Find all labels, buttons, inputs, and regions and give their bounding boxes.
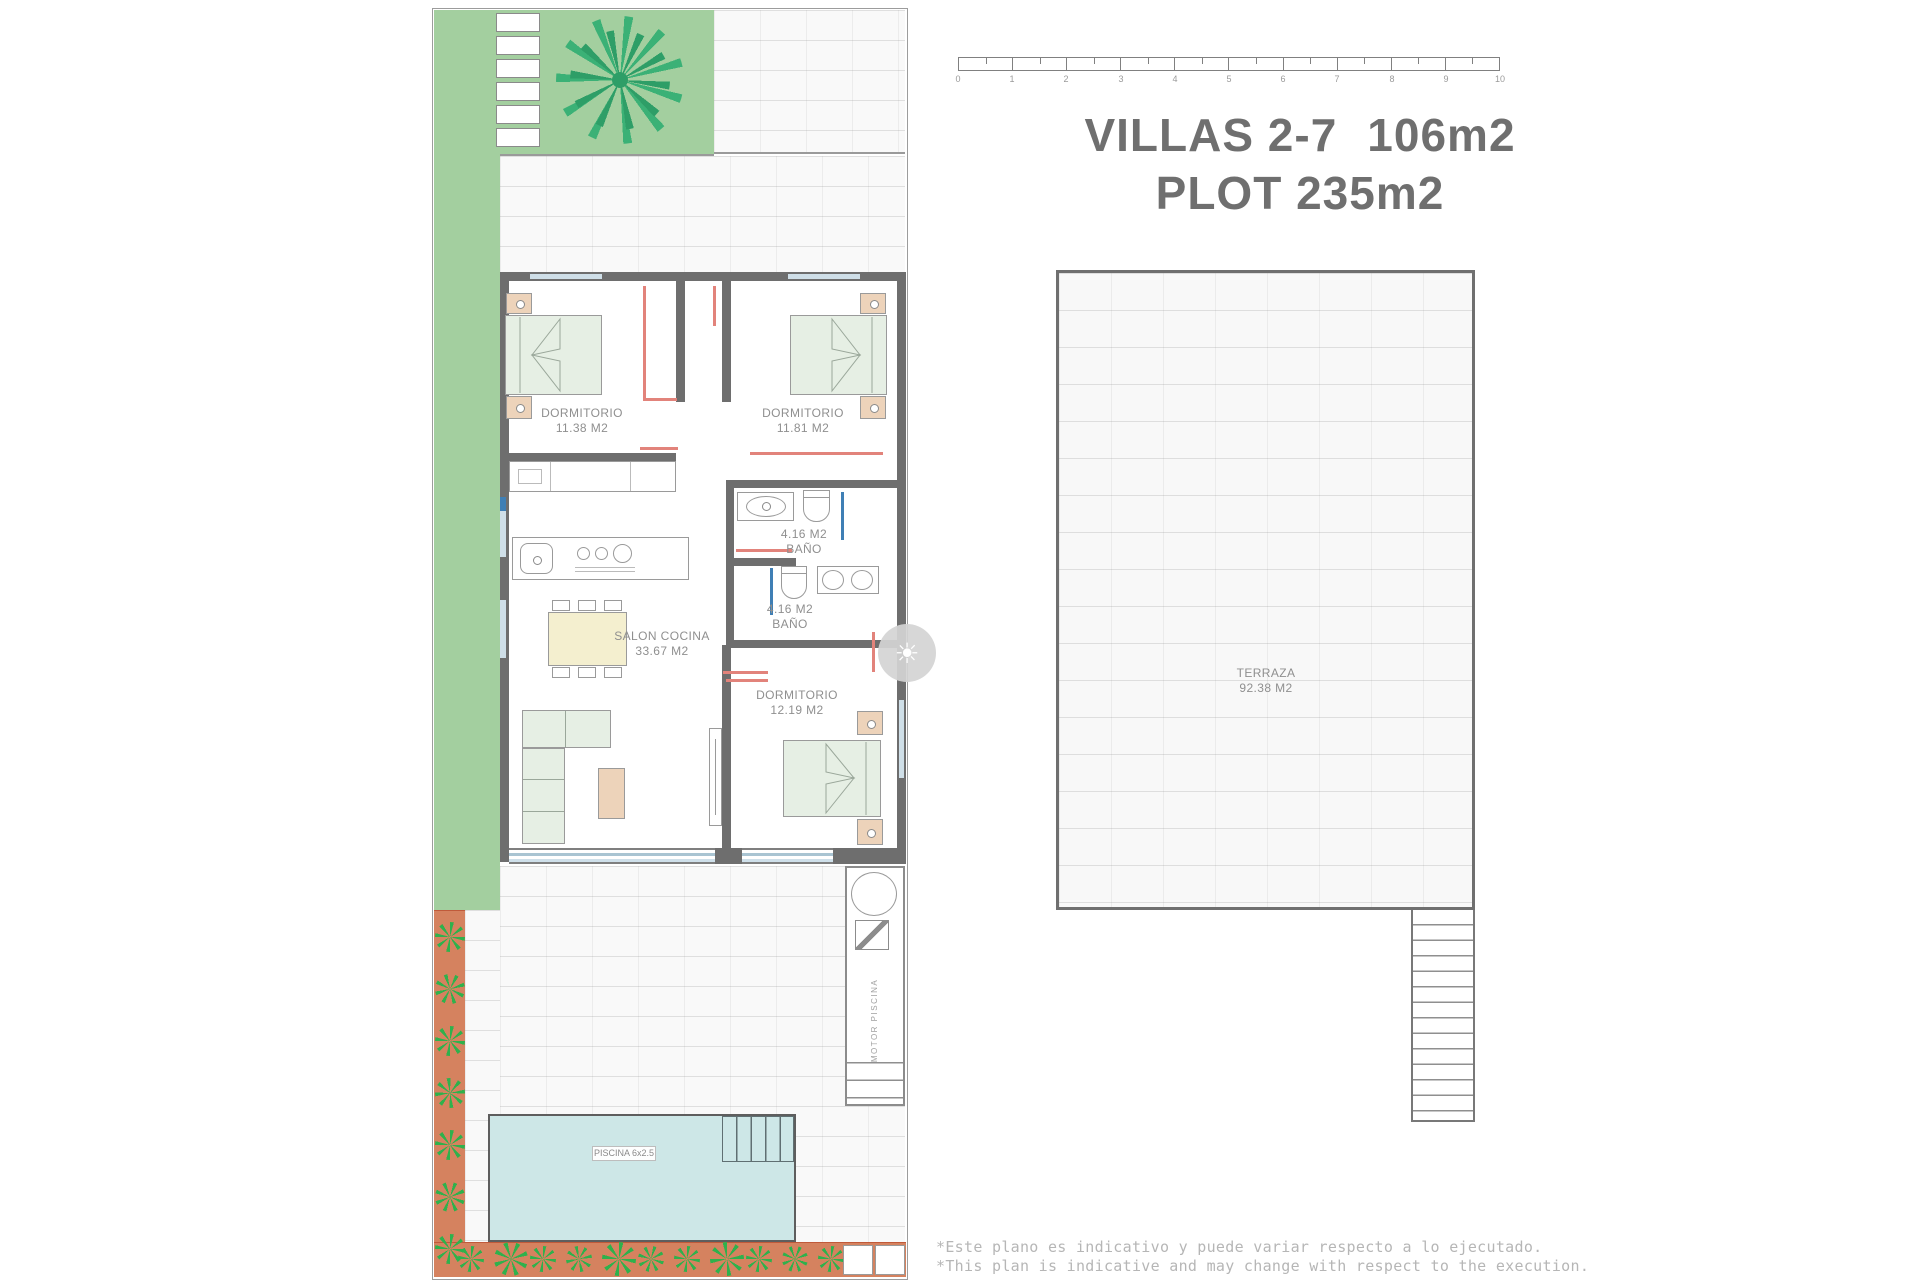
wall-living-bed3: [722, 645, 731, 855]
footnote-line-1: *Este plano es indicativo y puede variar…: [936, 1238, 1543, 1257]
title-villas: VILLAS 2-7: [1084, 106, 1337, 164]
scalebar-segment: [1175, 58, 1229, 70]
pool-steps: [722, 1116, 794, 1162]
stepping-stone: [496, 128, 540, 147]
bed-fold-graphic: [784, 741, 880, 816]
room-name: DORMITORIO: [733, 406, 873, 421]
door-line: [713, 286, 716, 326]
terrace-area: 92.38 M2: [1156, 681, 1376, 696]
sofa: [522, 748, 565, 844]
window: [530, 274, 602, 279]
plant-icon: [602, 1242, 636, 1276]
scale-bar-ticks: 0 1 2 3 4 5 6 7 8 9 10: [958, 74, 1500, 88]
plant-icon: [530, 1246, 556, 1272]
sun-icon: ☀: [878, 624, 936, 682]
cooktop-burner: [613, 544, 632, 563]
scalebar-tick-label: 7: [1334, 74, 1339, 84]
scalebar-tick-label: 9: [1443, 74, 1448, 84]
gate-pad: [843, 1245, 873, 1275]
kitchen-island: [512, 537, 689, 580]
room-area: 11.38 M2: [512, 421, 652, 436]
nightstand: [506, 293, 532, 314]
stepping-stone: [496, 105, 540, 124]
scalebar-tick-label: 0: [955, 74, 960, 84]
plant-icon: [818, 1246, 844, 1272]
kitchen-counter: [509, 461, 676, 492]
plant-icon: [435, 1026, 465, 1056]
room-name: SALON COCINA: [592, 629, 732, 644]
scale-bar: [958, 57, 1500, 71]
stepping-stone: [496, 13, 540, 32]
door-line: [872, 632, 875, 672]
sliding-glass-door: [742, 848, 833, 864]
window: [788, 274, 860, 279]
wall-hall-right: [722, 281, 731, 402]
chair: [604, 667, 622, 678]
room-label-bano-1: 4.16 M2 BAÑO: [744, 527, 864, 557]
plant-icon: [435, 922, 465, 952]
plant-icon: [435, 1130, 465, 1160]
room-label-bano-2: 4.16 M2 BAÑO: [730, 602, 850, 632]
coffee-table: [598, 768, 625, 819]
wall-bottom-right: [833, 848, 906, 864]
stepping-stone: [496, 36, 540, 55]
door-line: [726, 679, 768, 682]
wall-bed1-bottom: [509, 453, 676, 461]
terrace-name: TERRAZA: [1156, 666, 1376, 681]
nightstand: [857, 711, 883, 735]
garden-side-strip: [434, 10, 500, 910]
tv-unit: [709, 728, 722, 826]
terrace: [1056, 270, 1475, 910]
scalebar-tick-label: 3: [1118, 74, 1123, 84]
closet-shelves: [847, 1046, 903, 1102]
chair: [578, 600, 596, 611]
bed-fold-graphic: [506, 316, 601, 394]
window: [500, 600, 506, 658]
toilet: [781, 566, 807, 599]
door-line: [723, 671, 768, 674]
room-label-dormitorio-3: DORMITORIO 12.19 M2: [727, 688, 867, 718]
room-area: 12.19 M2: [727, 703, 867, 718]
footnote-line-2: *This plan is indicative and may change …: [936, 1257, 1589, 1276]
pool-label: PISCINA 6x2.5: [592, 1146, 656, 1161]
title-line-2: PLOT 235m2: [1080, 164, 1520, 222]
scalebar-tick-label: 2: [1063, 74, 1068, 84]
sofa: [522, 710, 611, 748]
scalebar-segment: [1338, 58, 1392, 70]
wall-bed2-bottom: [731, 480, 897, 488]
cooktop-burner: [577, 547, 590, 560]
room-name: DORMITORIO: [512, 406, 652, 421]
cooktop-burner: [595, 547, 608, 560]
scalebar-segment: [959, 58, 1013, 70]
plant-icon: [674, 1246, 700, 1272]
chair: [578, 667, 596, 678]
scalebar-segment: [1121, 58, 1175, 70]
scalebar-tick-label: 10: [1495, 74, 1505, 84]
paving-front: [500, 156, 905, 272]
scalebar-segment: [1392, 58, 1446, 70]
room-area: 4.16 M2: [744, 527, 864, 542]
plant-icon: [746, 1246, 772, 1272]
chair: [552, 667, 570, 678]
door-line: [643, 398, 677, 401]
room-name: DORMITORIO: [727, 688, 867, 703]
stepping-stone: [496, 59, 540, 78]
wall-hall-left: [676, 281, 685, 402]
gate-pad: [875, 1245, 905, 1275]
scalebar-segment: [1446, 58, 1499, 70]
nightstand: [857, 819, 883, 845]
door-line: [643, 286, 646, 400]
room-name: BAÑO: [730, 617, 850, 632]
room-area: 11.81 M2: [733, 421, 873, 436]
bed: [783, 740, 881, 817]
scalebar-tick-label: 5: [1226, 74, 1231, 84]
scalebar-segment: [1284, 58, 1338, 70]
room-label-salon-cocina: SALON COCINA 33.67 M2: [592, 629, 732, 659]
double-sink-vanity: [817, 566, 879, 594]
title-line-1: VILLAS 2-7 106m2: [1080, 106, 1520, 164]
bed-fold-graphic: [791, 316, 886, 394]
title-plot: PLOT 235m2: [1156, 164, 1445, 222]
bed: [505, 315, 602, 395]
wall-foot-center: [715, 848, 742, 864]
room-label-dormitorio-1: DORMITORIO 11.38 M2: [512, 406, 652, 436]
room-area: 33.67 M2: [592, 644, 732, 659]
scalebar-segment: [1013, 58, 1067, 70]
outdoor-shower: [851, 872, 897, 916]
door-line: [750, 452, 883, 455]
window: [500, 505, 506, 557]
chair: [604, 600, 622, 611]
scalebar-tick-label: 1: [1009, 74, 1014, 84]
window: [899, 700, 904, 778]
title-area: 106m2: [1367, 106, 1515, 164]
scalebar-segment: [1229, 58, 1283, 70]
plumbing-line: [500, 497, 506, 511]
terrace-stairs: [1411, 910, 1475, 1122]
stepping-stones: [496, 13, 544, 153]
scalebar-tick-label: 6: [1280, 74, 1285, 84]
room-name: BAÑO: [744, 542, 864, 557]
room-label-dormitorio-2: DORMITORIO 11.81 M2: [733, 406, 873, 436]
plant-icon: [458, 1246, 484, 1272]
chair: [552, 600, 570, 611]
wall-between-baths: [734, 558, 796, 566]
plan-title: VILLAS 2-7 106m2 PLOT 235m2: [1080, 106, 1520, 222]
scalebar-tick-label: 4: [1172, 74, 1177, 84]
toilet: [803, 490, 830, 522]
nightstand: [860, 293, 886, 314]
bed: [790, 315, 887, 395]
terrace-label: TERRAZA 92.38 M2: [1156, 666, 1376, 696]
door-line: [640, 447, 678, 450]
palm-tree-icon: [556, 16, 684, 144]
paving-top-right: [714, 10, 905, 154]
room-area: 4.16 M2: [730, 602, 850, 617]
stepping-stone: [496, 82, 540, 101]
floor-plan-canvas: DORMITORIO 11.38 M2 DORMITORIO 11.81 M2 …: [0, 0, 1920, 1280]
scalebar-tick-label: 8: [1389, 74, 1394, 84]
sliding-glass-door: [509, 848, 715, 864]
scalebar-segment: [1067, 58, 1121, 70]
pool-motor-unit: [855, 920, 889, 950]
bathroom-sink-cabinet: [737, 492, 794, 521]
